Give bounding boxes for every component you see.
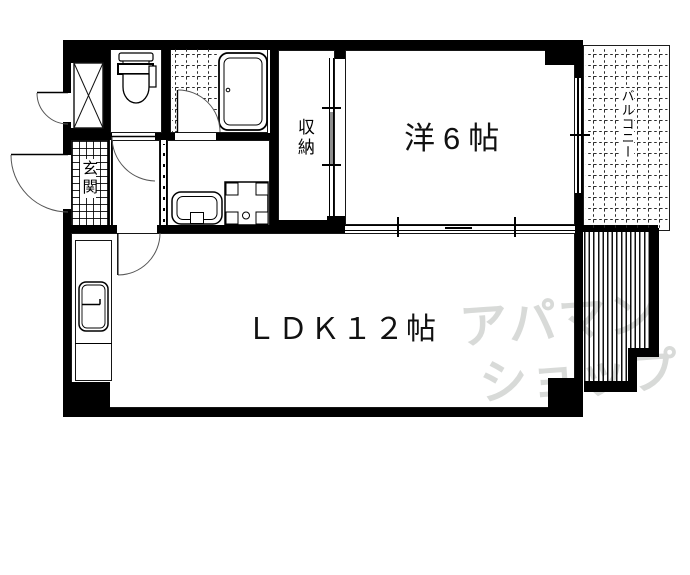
meter-box-door (37, 93, 68, 125)
bathtub-icon (219, 53, 267, 130)
label-entrance: 玄関 (80, 159, 96, 198)
floor-plan: 洋6帖 ＬＤＫ１２帖 収納 玄関 バルコニー アパマン ショップ (0, 0, 690, 575)
washbasin-icon (172, 192, 222, 224)
watermark-line-2: ショップ (477, 330, 681, 414)
entrance-door (11, 155, 68, 213)
shaft-x-icon (74, 63, 103, 128)
label-storage: 収納 (295, 118, 313, 158)
label-western-room: 洋6帖 (404, 113, 507, 158)
toilet-door (112, 137, 155, 182)
hall-ldk-door (118, 233, 160, 275)
toilet-icon (118, 53, 156, 103)
label-ldk: ＬＤＫ１２帖 (246, 304, 438, 348)
washing-machine-pan-icon (225, 182, 268, 225)
label-balcony: バルコニー (620, 88, 634, 160)
kitchen-sink-icon (79, 282, 108, 331)
